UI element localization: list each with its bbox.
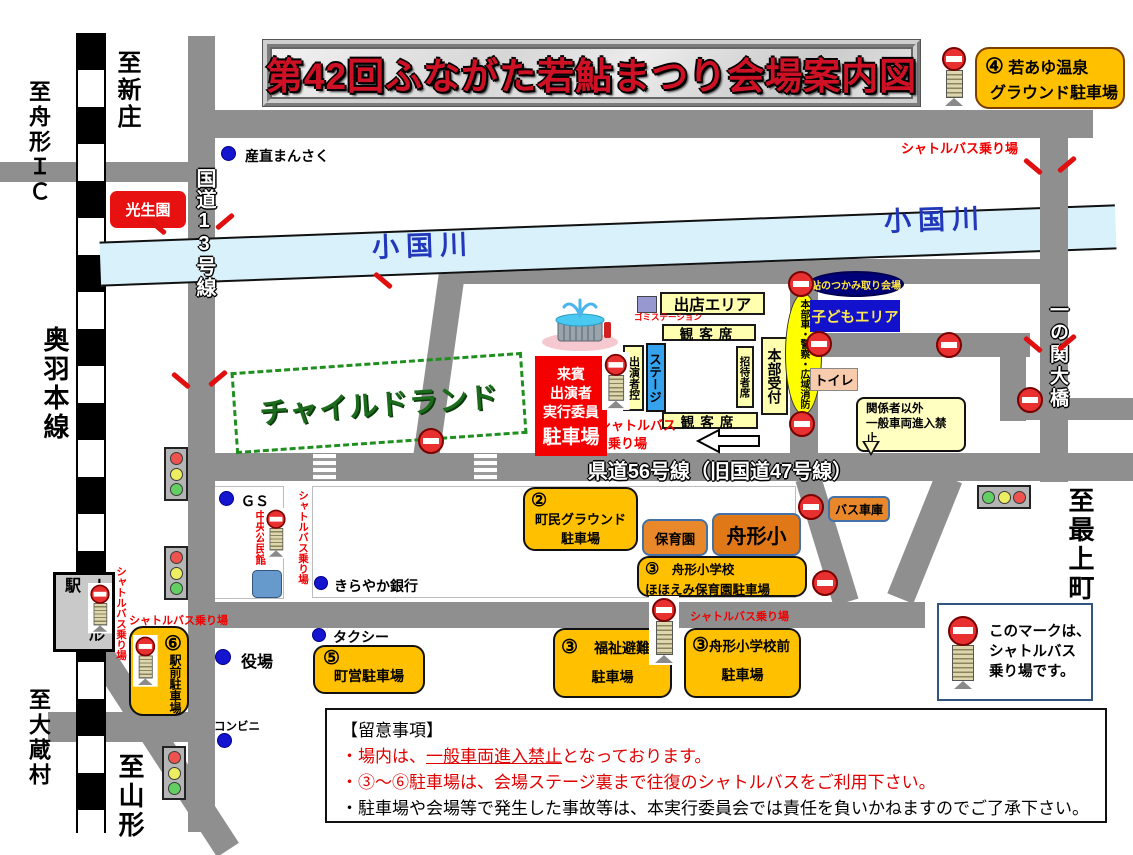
invited-guests-box: 招待者席 <box>736 346 754 408</box>
spectator-seats-bottom: 観客席 <box>662 412 758 429</box>
parking-4-number: ④ <box>985 55 1004 78</box>
poi-sanchoku: 産直まんさく <box>245 146 329 166</box>
ayu-catching-ellipse: 鮎のつかみ取り会場 <box>808 271 904 297</box>
shuttle-stop-icon <box>88 583 112 633</box>
shuttle-stop-icon <box>133 635 158 687</box>
shuttle-stop-icon <box>602 352 630 410</box>
poi-dot-conbini <box>217 733 232 748</box>
shuttle-stop-label: シャトルバス乗り場 <box>114 566 129 661</box>
poi-conbini: コンビニ <box>214 718 260 734</box>
shuttle-stop-icon <box>264 508 288 558</box>
shuttle-stop-icon <box>649 596 679 665</box>
stage-box: ステージ <box>646 343 666 412</box>
kominkan-building <box>252 570 282 598</box>
road-bottom <box>212 602 925 628</box>
no-entry-sign <box>936 332 962 358</box>
ichinoseki-bridge-label: 一の関大橋 <box>1044 300 1071 410</box>
no-entry-icon <box>942 47 966 71</box>
poi-yakuba: 役場 <box>241 648 273 672</box>
parking-2-ground: ② 町民グラウンド 駐車場 <box>523 487 638 551</box>
no-entry-icon <box>605 354 627 376</box>
no-entry-icon <box>266 510 285 529</box>
parking-6-ekimae: ⑥ 駅前駐車場 <box>129 626 189 716</box>
hq-reception-box: 本部受付 <box>761 337 788 415</box>
route13-label: 国道13号線 <box>190 168 219 298</box>
poi-kirayaka: きらやか銀行 <box>334 576 418 596</box>
traffic-light <box>164 447 188 501</box>
parking-3-school-front: ③舟形小学校前 駐車場 <box>684 628 801 698</box>
jr-funagata-station: ＪＲ舟形駅 <box>53 572 115 652</box>
poi-childland: チャイルドランド <box>230 352 527 454</box>
traffic-light <box>164 546 188 600</box>
dir-okura: 至大蔵村 <box>22 688 54 788</box>
railway-ou-line <box>76 33 106 833</box>
map-title: 第42回ふながた若鮎まつり会場案内図 <box>266 46 917 100</box>
poi-dot-yakuba <box>215 649 231 665</box>
parking-5-choei: ⑤ 町営駐車場 <box>313 645 425 694</box>
traffic-light <box>162 746 186 800</box>
no-entry-icon <box>135 637 155 657</box>
river-label: 小国川 <box>883 196 986 239</box>
notes-box: 【留意事項】 ・場内は、一般車両進入禁止となっております。 ・③～⑥駐車場は、会… <box>325 708 1107 823</box>
road-top <box>202 110 1093 138</box>
poi-taxi: タクシー <box>333 627 389 647</box>
shuttle-stop-label: シャトルバス乗り場 <box>296 490 311 585</box>
poi-dot-sanchoku <box>221 146 236 161</box>
no-entry-sign <box>798 494 824 520</box>
no-entry-icon <box>652 598 676 622</box>
shuttle-stop-label: シャトルバス <box>598 415 676 434</box>
no-entry-sign <box>788 271 814 297</box>
no-entry-sign <box>806 331 832 357</box>
dir-yamagata: 至山形 <box>112 753 149 840</box>
crosswalk <box>313 454 336 480</box>
parking-3-hohoemi: ③ 舟形小学校 ほほえみ保育園駐車場 <box>637 556 807 597</box>
no-entry-sign <box>418 428 444 454</box>
kendo56-label: 県道56号線（旧国道47号線） <box>545 455 895 484</box>
poi-dot-taxi <box>312 628 326 642</box>
toilet-box: トイレ <box>810 368 858 391</box>
spectator-seats-top: 観客席 <box>662 324 756 341</box>
dir-shinjo: 至新庄 <box>109 50 144 131</box>
map-title-banner: 第42回ふながた若鮎まつり会場案内図 <box>263 40 920 106</box>
shuttle-stop-label: シャトルバス乗り場 <box>901 138 1018 157</box>
shuttle-stop-label: シャトルバス乗り場 <box>690 608 789 624</box>
notes-line-1: ・場内は、一般車両進入禁止となっております。 <box>341 744 1091 770</box>
poi-dot-gs <box>219 491 234 506</box>
poi-dot-kirayaka <box>314 576 328 590</box>
festival-venue-map: 小国川 小国川 国道13号線 一の関大橋 県道56号線（旧国道47号線） 第42… <box>0 0 1133 855</box>
shuttle-stop-icon <box>945 614 981 691</box>
flow-arrow-left <box>695 428 761 454</box>
legend-box: このマークは、 シャトルバス 乗り場です。 <box>937 603 1093 701</box>
road-diagonal-garage <box>887 473 962 604</box>
river-label: 小国川 <box>371 222 474 265</box>
dir-ou-line: 奥羽本線 <box>37 326 74 442</box>
notes-line-2: ・③～⑥駐車場は、会場ステージ裏まで往復のシャトルバスをご利用下さい。 <box>341 770 1091 796</box>
poi-bus-garage: バス車庫 <box>828 496 890 522</box>
crosswalk <box>474 454 497 480</box>
notes-line-3: ・駐車場や会場等で発生した事故等は、本実行委員会では責任を負いかねますのでご了承… <box>341 796 1091 822</box>
garbage-station-label: ゴミステーション <box>634 311 702 323</box>
fountain-icon <box>538 292 622 352</box>
no-entry-icon <box>948 616 978 646</box>
dir-funagata-ic: 至舟形ＩＣ <box>22 80 54 205</box>
no-entry-sign <box>1017 387 1043 413</box>
shuttle-stop-icon <box>939 45 969 108</box>
poi-funagata-elementary: 舟形小 <box>712 513 801 556</box>
shuttle-stop-label: 乗り場 <box>608 433 647 452</box>
dir-mogami: 至最上町 <box>1062 487 1099 603</box>
poi-hoikuen: 保育園 <box>642 519 708 556</box>
vip-parking-box: 来賓 出演者 実行委員 駐車場 <box>535 356 607 456</box>
parking-4-wakaayu: ④ 若あゆ温泉 グラウンド駐車場 <box>975 47 1125 109</box>
no-entry-sign <box>812 570 838 596</box>
no-entry-icon <box>90 585 109 604</box>
traffic-light <box>977 485 1031 509</box>
no-entry-sign <box>789 411 815 437</box>
kids-area-box: 子どもエリア <box>810 300 900 332</box>
restricted-area-callout: 関係者以外 一般車両進入禁止 <box>856 397 966 452</box>
notes-heading: 【留意事項】 <box>341 718 1091 744</box>
road-mid-right <box>818 333 1030 357</box>
